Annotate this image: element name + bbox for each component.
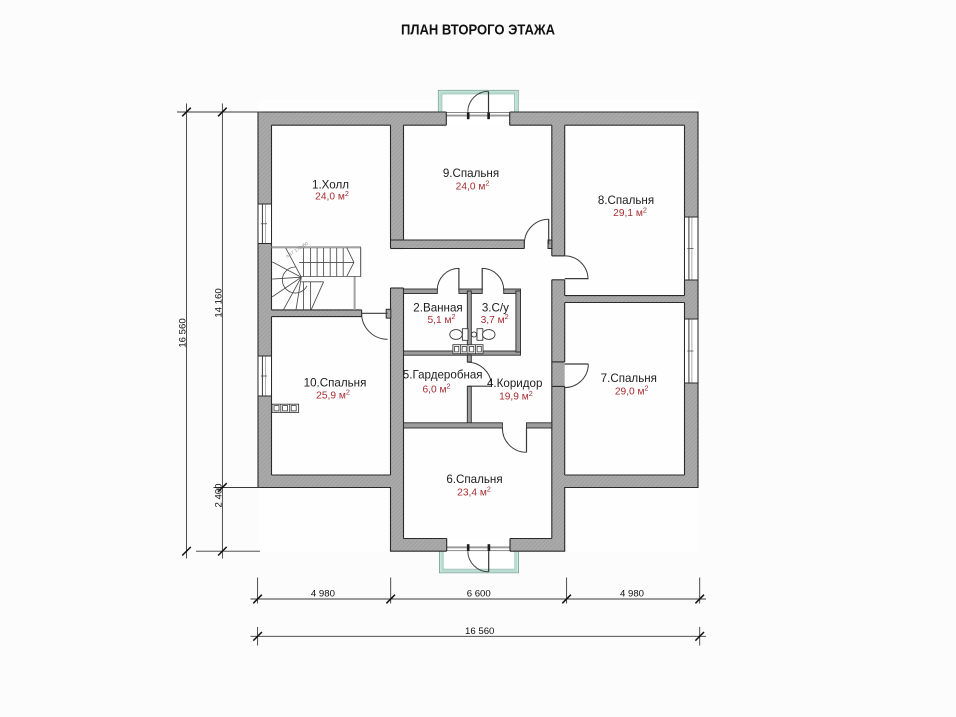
svg-text:16 560: 16 560 bbox=[465, 626, 494, 637]
svg-text:ПЛАН ВТОРОГО ЭТАЖА: ПЛАН ВТОРОГО ЭТАЖА bbox=[401, 23, 555, 39]
svg-text:10.Спальня: 10.Спальня bbox=[304, 377, 367, 390]
svg-text:25,9 м2: 25,9 м2 bbox=[316, 388, 350, 402]
svg-text:6.Спальня: 6.Спальня bbox=[446, 473, 502, 486]
svg-text:4 980: 4 980 bbox=[311, 589, 335, 600]
svg-text:3,7 м2: 3,7 м2 bbox=[481, 312, 509, 326]
svg-text:1.Холл: 1.Холл bbox=[312, 178, 349, 191]
svg-text:24,0 м2: 24,0 м2 bbox=[315, 189, 349, 203]
svg-text:5.Гардеробная: 5.Гардеробная bbox=[403, 368, 483, 381]
svg-text:6,0 м2: 6,0 м2 bbox=[423, 382, 451, 396]
svg-text:29,0 м2: 29,0 м2 bbox=[615, 384, 649, 398]
svg-text:24,0 м2: 24,0 м2 bbox=[456, 179, 490, 193]
svg-text:9.Спальня: 9.Спальня bbox=[443, 167, 499, 180]
svg-text:23,4 м2: 23,4 м2 bbox=[457, 485, 491, 499]
svg-text:4.Коридор: 4.Коридор bbox=[487, 377, 542, 390]
svg-text:29,1 м2: 29,1 м2 bbox=[613, 206, 647, 220]
svg-text:14 160: 14 160 bbox=[214, 288, 225, 317]
svg-text:19,9 м2: 19,9 м2 bbox=[499, 389, 533, 403]
svg-text:16 560: 16 560 bbox=[178, 318, 189, 347]
svg-text:6 600: 6 600 bbox=[467, 589, 491, 600]
svg-text:5,1 м2: 5,1 м2 bbox=[428, 312, 456, 326]
svg-text:2 400: 2 400 bbox=[214, 483, 225, 507]
svg-text:4 980: 4 980 bbox=[620, 589, 644, 600]
